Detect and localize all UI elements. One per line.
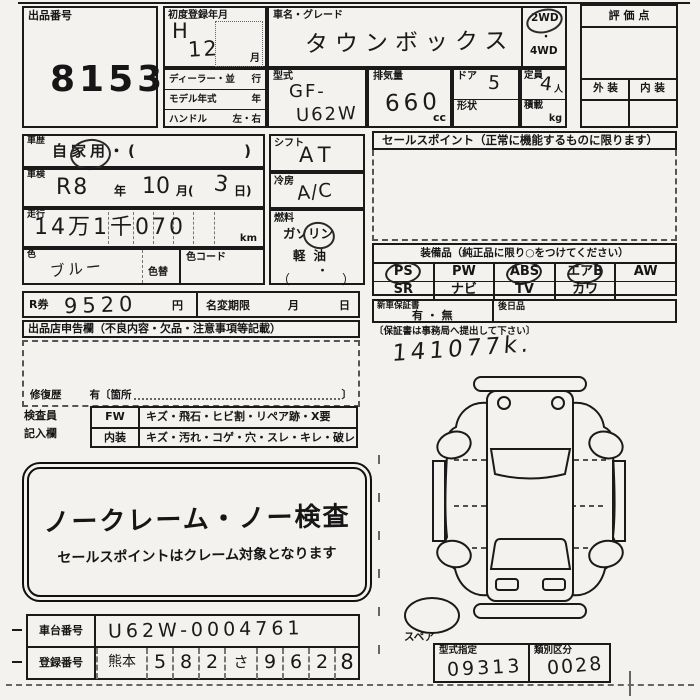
dealer-label: ディーラー・並	[169, 70, 235, 89]
shaken-box: 車検 R8 年 10 月( 3 日)	[22, 168, 265, 208]
no-claim-banner: ノークレーム・ノー検査 セールスポイントはクレーム対象となります	[22, 462, 372, 602]
model-code-box: 型式 GF- U62W	[267, 68, 367, 128]
equipment-aw: AW	[614, 264, 675, 281]
equipment-navi: ナビ	[433, 282, 494, 299]
dealer-column: ディーラー・並 行 モデル年式 年 ハンドル 左・右	[163, 68, 267, 128]
equipment-pw: PW	[433, 264, 494, 281]
fuel-diesel: 軽油	[293, 249, 334, 263]
dealer-unit: 行	[251, 70, 261, 89]
shift-value: AT	[299, 145, 337, 166]
rating-box: 評 価 点 外 装 内 装	[580, 4, 678, 128]
chassis-label: 車台番号	[28, 616, 96, 646]
exterior-label: 外 装	[582, 80, 629, 99]
doors-value: 5	[487, 74, 500, 94]
model-year-label: モデル年式	[169, 90, 217, 109]
equipment-tv: TV	[493, 282, 554, 299]
class-category-value: 0028	[546, 655, 604, 679]
chassis-registration-table: 車台番号 U62W-0004761 登録番号 熊本 5 8 2 さ 9 6 2 …	[26, 614, 360, 680]
color-label: 色	[27, 251, 36, 261]
mileage-unit: km	[240, 233, 257, 244]
left-tick-2	[12, 661, 22, 663]
shaken-era: R8	[56, 177, 89, 199]
chassis-row: 車台番号 U62W-0004761	[28, 616, 358, 648]
mileage-value: 14万1千070	[34, 217, 186, 239]
auction-sheet: 出品番号 8153 初度登録年月 H 12 月 車名・グレード タウンボックス …	[0, 0, 700, 700]
name-change-month: 月	[288, 300, 299, 312]
registration-region: 熊本	[96, 648, 146, 679]
inspector-label-1: 検査員	[24, 410, 57, 422]
sales-point-area	[372, 150, 677, 241]
history-label: 車歴	[27, 137, 45, 147]
payload-label: 積載	[524, 101, 543, 111]
inspector-interior-head: 内装	[92, 429, 140, 448]
name-change-label: 名変期限	[206, 300, 250, 312]
aircon-value: A/C	[296, 181, 333, 204]
horizontal-fold-line	[6, 684, 694, 686]
vehicle-name-box: 車名・グレード タウンボックス 2WD ・ 4WD	[267, 6, 567, 68]
rating-divider	[628, 78, 630, 126]
model-code-line2: U62W	[296, 105, 358, 125]
registration-digit: 5	[146, 648, 172, 679]
doors-cell: ドア 5	[454, 70, 518, 100]
shaken-day-suffix: 日)	[234, 185, 252, 198]
history-close: )	[244, 144, 251, 159]
registration-digit: 8	[334, 648, 358, 679]
equipment-empty	[614, 282, 675, 299]
doors-label: ドア	[457, 71, 477, 82]
drive-4wd: 4WD	[530, 46, 558, 58]
drive-sep: ・	[541, 32, 551, 43]
r-ticket-value: 9520	[64, 294, 138, 318]
registration-label: 登録番号	[28, 648, 96, 679]
history-box: 車歴 自家用・( )	[22, 134, 265, 168]
left-tick-1	[12, 629, 22, 631]
inspector-interior-text: キズ・汚れ・コゲ・穴・スレ・キレ・破レ	[140, 429, 356, 448]
handle-label: ハンドル	[169, 110, 207, 130]
doors-shape-box: ドア 5 形状	[452, 68, 520, 128]
registration-digit: 6	[282, 648, 308, 679]
payload-unit: kg	[549, 114, 562, 124]
displacement-label: 排気量	[373, 71, 403, 82]
model-year-row: モデル年式 年	[165, 90, 265, 110]
registration-digit: 9	[256, 648, 282, 679]
registration-kana: さ	[224, 648, 256, 679]
inspector-fw-text: キズ・飛石・ヒビ割・リペア跡・X要	[140, 408, 356, 427]
warranty-options: 有 ・ 無	[412, 310, 453, 322]
equipment-sr: SR	[374, 282, 433, 299]
inspector-table: FW キズ・飛石・ヒビ割・リペア跡・X要 内装 キズ・汚れ・コゲ・穴・スレ・キレ…	[90, 406, 358, 448]
shaken-day: 3	[213, 173, 230, 197]
vehicle-name-value: タウンボックス	[305, 30, 515, 57]
dealer-row: ディーラー・並 行	[165, 70, 265, 90]
declaration-header: 出品店申告欄（不良内容・欠品・注意事項等記載）	[22, 320, 360, 338]
equipment-ps: PS	[374, 264, 433, 281]
aircon-label: 冷房	[274, 176, 294, 187]
warranty-box: 新車保証書 有 ・ 無 後日品	[372, 299, 677, 323]
month-suffix: 月	[250, 53, 260, 64]
registration-digit: 8	[172, 648, 198, 679]
capacity-cell: 定員 4 人	[522, 70, 565, 100]
model-year-unit: 年	[251, 90, 261, 109]
mileage-box: 走行 14万1千070 km	[22, 208, 265, 248]
sales-point-title: セールスポイント（正常に機能するものに限ります）	[382, 134, 658, 147]
declaration-area: 修復歴 有〔箇所 〕	[22, 340, 360, 407]
lot-number-value: 8153	[50, 60, 166, 100]
color-value: ブルー	[49, 259, 104, 280]
displacement-unit: cc	[433, 112, 446, 124]
first-registration-era: H	[172, 21, 188, 42]
model-code-line1: GF-	[289, 83, 326, 101]
r-ticket-box: R券 9520 円 名変期限 月 日	[22, 291, 360, 318]
sales-point-header: セールスポイント（正常に機能するものに限ります）	[372, 131, 677, 150]
registration-row: 登録番号 熊本 5 8 2 さ 9 6 2 8	[28, 648, 358, 679]
color-box: 色 ブルー 色替 色コード	[22, 248, 265, 285]
shaken-year-suffix: 年	[114, 185, 126, 198]
lot-number-label: 出品番号	[28, 10, 72, 22]
shaken-label: 車検	[27, 171, 45, 181]
fuel-box: 燃料 ガソリン 軽油 ・ （ ）	[269, 209, 365, 285]
vertical-fold-line	[378, 455, 380, 681]
inspector-fw-head: FW	[92, 408, 140, 427]
vehicle-name-label: 車名・グレード	[273, 10, 343, 21]
odometer-note: 141077k.	[391, 333, 533, 366]
chassis-value: U62W-0004761	[96, 614, 304, 648]
interior-label: 内 装	[629, 80, 676, 99]
rating-title: 評 価 点	[582, 6, 676, 28]
r-ticket-label: R券	[29, 299, 48, 311]
fuel-paren-open: （	[277, 269, 290, 288]
warranty-later-label: 後日品	[498, 303, 525, 313]
equipment-airbag: エアB	[554, 264, 615, 281]
inspector-row-fw: FW キズ・飛石・ヒビ割・リペア跡・X要	[92, 408, 356, 427]
declaration-title: 出品店申告欄（不良内容・欠品・注意事項等記載）	[28, 323, 281, 335]
spare-tire-label: スペア	[404, 632, 435, 644]
registration-digit: 2	[308, 648, 334, 679]
repair-history-label: 修復歴	[30, 387, 62, 402]
capacity-value: 4	[539, 74, 554, 94]
repair-history-line: 修復歴 有〔箇所 〕	[30, 387, 352, 402]
name-change-day: 日	[339, 300, 350, 312]
handle-unit: 左・右	[232, 110, 261, 130]
type-designation-label: 型式指定	[439, 646, 477, 656]
equipment-row-2: SR ナビ TV カワ	[374, 281, 675, 299]
type-designation-table: 型式指定 09313 類別区分 0028	[433, 643, 611, 683]
no-claim-subtitle: セールスポイントはクレーム対象となります	[29, 542, 365, 568]
fold-cross-mark	[629, 671, 631, 696]
color-code-label: 色コード	[186, 252, 226, 263]
shift-box: シフト AT	[269, 134, 365, 172]
spare-tire-circle	[404, 597, 460, 634]
drive-type-cell: 2WD ・ 4WD	[521, 8, 565, 66]
aircon-box: 冷房 A/C	[269, 172, 365, 209]
equipment-leather: カワ	[554, 282, 615, 299]
car-damage-diagram	[424, 371, 636, 625]
displacement-box: 排気量 660 cc	[367, 68, 452, 128]
inspector-label-2: 記入欄	[24, 428, 57, 440]
fuel-label: 燃料	[274, 213, 294, 224]
fuel-dot: ・	[317, 265, 328, 277]
equipment-table: 装備品（純正品に限り○をつけてください） PS PW ABS エアB AW SR…	[372, 243, 677, 296]
repair-history-close: 〕	[342, 387, 353, 402]
fuel-paren-close: ）	[342, 269, 355, 288]
first-registration-box: 初度登録年月 H 12 月	[163, 6, 267, 68]
capacity-unit: 人	[554, 86, 563, 96]
inspector-row-interior: 内装 キズ・汚れ・コゲ・穴・スレ・キレ・破レ	[92, 427, 356, 448]
shaken-month: 10	[142, 176, 170, 198]
equipment-row-1: PS PW ABS エアB AW	[374, 264, 675, 281]
r-ticket-unit: 円	[172, 300, 183, 312]
no-claim-title: ノークレーム・ノー検査	[29, 495, 366, 539]
handle-row: ハンドル 左・右	[165, 110, 265, 130]
capacity-payload-box: 定員 4 人 積載 kg	[520, 68, 567, 128]
lot-number-box: 出品番号 8153	[22, 6, 158, 128]
shaken-month-suffix: 月(	[176, 185, 194, 198]
color-change-label: 色替	[148, 267, 168, 278]
repair-history-text: 有〔箇所	[90, 387, 132, 402]
equipment-abs: ABS	[493, 264, 554, 281]
type-designation-value: 09313	[447, 657, 523, 680]
shape-label: 形状	[457, 101, 477, 112]
registration-digit: 2	[198, 648, 224, 679]
